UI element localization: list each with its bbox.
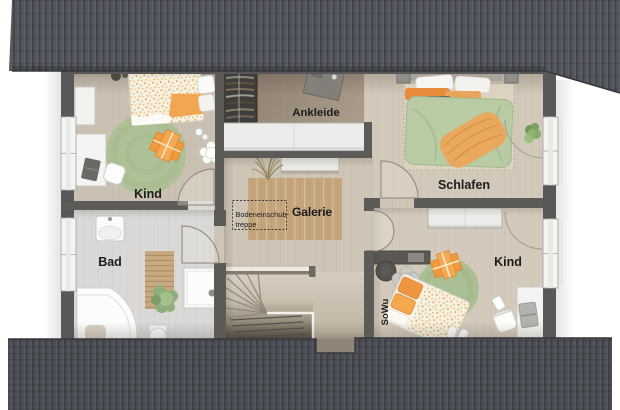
svg-text:Galerie: Galerie <box>292 205 332 219</box>
svg-text:Kind: Kind <box>134 187 162 201</box>
svg-text:Kind: Kind <box>494 255 522 269</box>
svg-text:Schlafen: Schlafen <box>438 178 490 192</box>
svg-text:Ankleide: Ankleide <box>292 107 339 119</box>
svg-text:Bodeneinschub-: Bodeneinschub- <box>236 210 290 219</box>
svg-text:treppe: treppe <box>236 220 257 229</box>
svg-text:Bad: Bad <box>98 255 122 269</box>
